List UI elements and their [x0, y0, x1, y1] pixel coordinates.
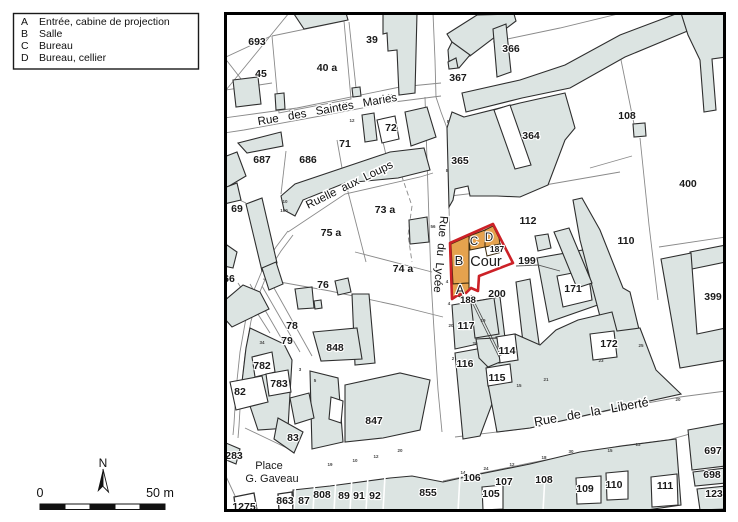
svg-text:366: 366: [502, 43, 520, 55]
svg-text:78: 78: [286, 320, 298, 332]
svg-text:115: 115: [489, 372, 506, 384]
svg-text:Bureau, cellier: Bureau, cellier: [39, 52, 107, 64]
svg-text:15: 15: [516, 383, 522, 388]
svg-text:Entrée, cabine de projection: Entrée, cabine de projection: [39, 16, 170, 28]
svg-text:111: 111: [657, 480, 674, 492]
svg-text:110: 110: [606, 479, 623, 491]
svg-text:808: 808: [313, 489, 331, 501]
svg-text:91: 91: [353, 490, 365, 502]
svg-text:367: 367: [449, 72, 467, 84]
svg-text:200: 200: [488, 288, 506, 300]
svg-text:108: 108: [535, 474, 553, 486]
svg-text:29: 29: [472, 341, 478, 346]
svg-text:21: 21: [543, 377, 549, 382]
svg-text:73 a: 73 a: [375, 204, 396, 216]
svg-text:783: 783: [270, 378, 288, 390]
svg-text:83: 83: [287, 432, 299, 444]
svg-text:C: C: [470, 236, 478, 248]
svg-text:39: 39: [366, 34, 378, 46]
svg-text:B: B: [455, 253, 464, 268]
svg-text:847: 847: [365, 415, 383, 427]
svg-text:686: 686: [299, 154, 317, 166]
svg-text:34: 34: [259, 340, 265, 345]
svg-text:100: 100: [280, 208, 288, 213]
svg-text:30: 30: [568, 449, 574, 454]
svg-text:283: 283: [225, 450, 243, 462]
svg-text:23: 23: [598, 358, 604, 363]
svg-text:20: 20: [397, 448, 403, 453]
svg-text:A: A: [456, 283, 465, 297]
svg-text:74 a: 74 a: [393, 263, 414, 275]
svg-text:C: C: [21, 40, 29, 52]
svg-text:24: 24: [483, 466, 489, 471]
svg-text:20: 20: [448, 323, 454, 328]
svg-text:171: 171: [564, 283, 582, 295]
svg-text:40 a: 40 a: [317, 62, 338, 74]
svg-text:D: D: [485, 232, 493, 244]
svg-text:Cour: Cour: [470, 254, 502, 270]
svg-text:108: 108: [618, 110, 636, 122]
svg-text:187: 187: [490, 244, 504, 254]
svg-text:N: N: [99, 456, 108, 470]
svg-text:75 a: 75 a: [321, 227, 342, 239]
svg-text:15: 15: [607, 448, 613, 453]
svg-text:399: 399: [704, 291, 722, 303]
svg-text:848: 848: [326, 342, 344, 354]
svg-text:25: 25: [638, 343, 644, 348]
svg-text:B: B: [21, 28, 28, 40]
svg-text:863: 863: [276, 495, 294, 507]
svg-text:50 m: 50 m: [146, 486, 174, 500]
svg-text:92: 92: [369, 490, 381, 502]
svg-text:20: 20: [675, 397, 681, 402]
svg-text:45: 45: [255, 68, 267, 80]
svg-text:365: 365: [451, 155, 469, 167]
svg-text:G. Gaveau: G. Gaveau: [245, 473, 298, 485]
svg-text:106: 106: [463, 472, 481, 484]
svg-text:109: 109: [576, 483, 594, 495]
svg-text:117: 117: [458, 320, 475, 332]
svg-text:10: 10: [282, 199, 288, 204]
svg-text:697: 697: [704, 445, 722, 457]
svg-text:364: 364: [522, 130, 540, 142]
svg-text:56: 56: [430, 224, 436, 229]
svg-text:A: A: [21, 16, 28, 28]
svg-text:Salle: Salle: [39, 28, 63, 40]
svg-text:87: 87: [298, 495, 310, 507]
svg-text:13: 13: [635, 442, 641, 447]
svg-text:400: 400: [679, 178, 697, 190]
svg-text:Bureau: Bureau: [39, 40, 73, 52]
svg-text:199: 199: [518, 255, 536, 267]
svg-text:71: 71: [339, 138, 351, 150]
svg-text:116: 116: [457, 358, 474, 370]
svg-text:19: 19: [327, 462, 333, 467]
svg-text:69: 69: [231, 203, 243, 215]
svg-text:112: 112: [520, 215, 537, 227]
svg-text:D: D: [21, 52, 29, 64]
svg-text:12: 12: [509, 462, 515, 467]
svg-text:782: 782: [253, 360, 271, 372]
svg-text:107: 107: [495, 476, 513, 488]
svg-text:123: 123: [705, 488, 723, 500]
svg-text:855: 855: [419, 487, 437, 499]
svg-text:687: 687: [253, 154, 271, 166]
svg-text:0: 0: [37, 486, 44, 500]
svg-text:18: 18: [541, 455, 547, 460]
svg-text:76: 76: [317, 279, 329, 291]
svg-text:105: 105: [482, 488, 500, 500]
svg-text:12: 12: [373, 454, 379, 459]
svg-text:89: 89: [338, 490, 350, 502]
svg-text:Place: Place: [255, 460, 283, 472]
svg-text:72: 72: [385, 122, 397, 134]
svg-text:19: 19: [480, 318, 486, 323]
svg-text:82: 82: [234, 386, 246, 398]
svg-text:693: 693: [248, 36, 266, 48]
svg-text:12: 12: [349, 118, 355, 123]
svg-text:114: 114: [499, 345, 516, 357]
svg-text:79: 79: [281, 335, 293, 347]
svg-text:110: 110: [618, 235, 635, 247]
svg-text:10: 10: [352, 458, 358, 463]
svg-text:172: 172: [600, 338, 618, 350]
svg-text:698: 698: [703, 469, 721, 481]
